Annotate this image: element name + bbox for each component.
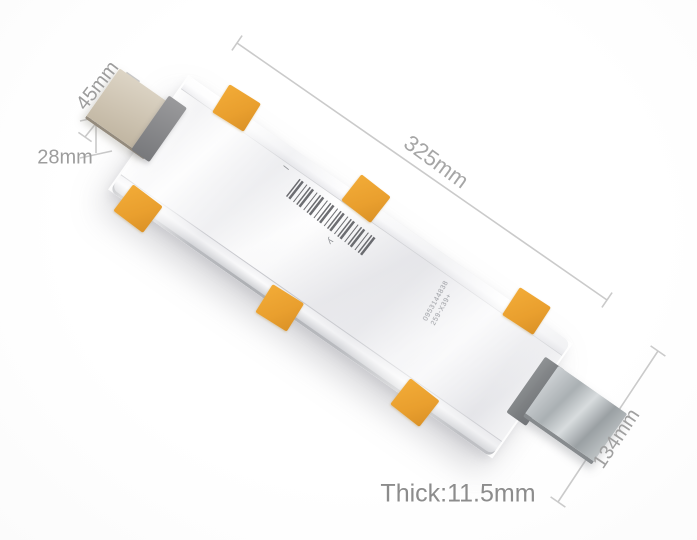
battery-cell: – y 0953144838 259-X39+ [110, 76, 571, 457]
label-cell-length: 325mm [399, 130, 474, 194]
pouch-face-sheen [110, 76, 571, 457]
label-tab-stub: 28mm [37, 147, 93, 170]
label-thickness: Thick:11.5mm [380, 480, 535, 509]
battery-product-photo: – y 0953144838 259-X39+ 45mm 28mm 325mm … [0, 0, 697, 540]
